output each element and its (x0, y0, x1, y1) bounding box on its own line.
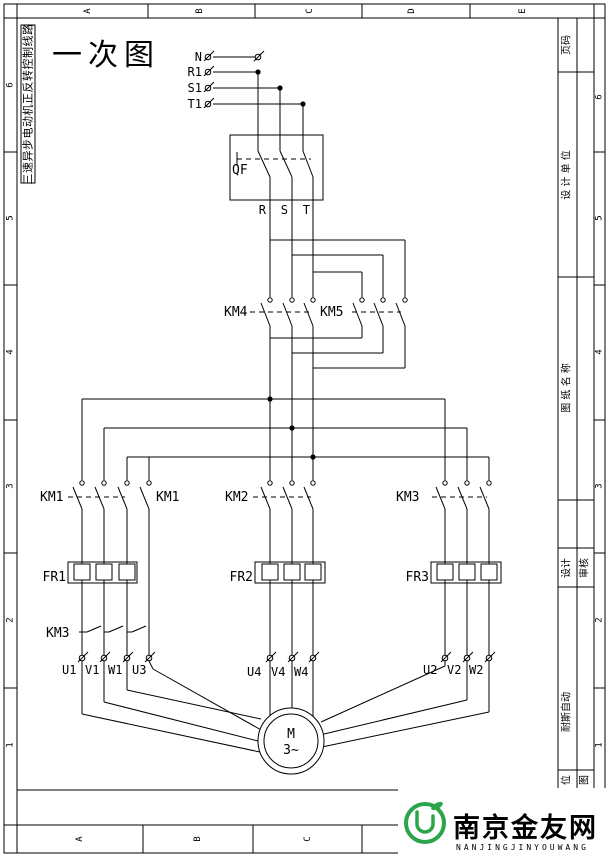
km1-label-left: KM1 (40, 490, 63, 505)
page-title: 一次图 (52, 38, 160, 73)
title-block-design: 设计 (560, 558, 573, 578)
grid-letter-top-c: C (305, 8, 315, 13)
terminal-symbol-n-end (254, 51, 264, 61)
km1-contact (95, 481, 106, 509)
v4-label: V4 (271, 665, 285, 679)
terminal-symbol-t1 (204, 98, 214, 108)
incoming-terminals: N R1 S1 T1 (188, 50, 306, 135)
km2-contact (261, 481, 272, 509)
km1-label-right: KM1 (156, 490, 179, 505)
terminal-symbol-v2 (463, 652, 473, 662)
fr3-relay: FR3 (406, 562, 501, 585)
km1-contact (73, 481, 84, 509)
terminal-t1-label: T1 (188, 97, 202, 111)
km4-label: KM4 (224, 305, 248, 320)
watermark-logo: 南京金友网 NANJINGJINYOUWANG (398, 788, 609, 858)
grid-letter-bottom-c: C (303, 836, 313, 841)
v1-label: V1 (85, 663, 99, 677)
km3-contact (436, 481, 447, 509)
motor-symbol: M 3~ (258, 708, 324, 774)
grid-number-right-4: 4 (595, 349, 605, 354)
terminal-symbol-w4 (309, 652, 319, 662)
distribution-buses (82, 396, 489, 480)
terminal-symbol-n (204, 51, 214, 61)
grid-number-left-1: 1 (6, 742, 16, 747)
grid-letter-top-b: B (195, 8, 205, 13)
schematic-sheet: A B C D E A B C 6 5 4 3 2 1 6 5 4 3 2 1 … (0, 0, 609, 858)
terminal-r1-label: R1 (188, 65, 202, 79)
phase-t-label: T (303, 203, 310, 217)
side-title-box: 三速异步电动机正反转控制线路 (21, 24, 36, 185)
grid-letter-bottom-a: A (75, 836, 85, 842)
km5-label: KM5 (320, 305, 343, 320)
motor-phase-label: 3~ (283, 743, 299, 758)
grid-number-left-6: 6 (6, 82, 16, 87)
u3-label: U3 (132, 663, 146, 677)
terminal-symbol-u3 (145, 652, 155, 662)
grid-letter-top-e: E (518, 8, 528, 13)
grid-letter-bottom-b: B (193, 836, 203, 841)
terminal-symbol-v4 (288, 652, 298, 662)
fr1-relay: FR1 (43, 562, 137, 585)
logo-name: 南京金友网 (453, 812, 598, 844)
terminal-symbol-w1 (123, 652, 133, 662)
km3-label: KM3 (396, 490, 419, 505)
w4-label: W4 (294, 665, 308, 679)
km3-star-label: KM3 (46, 626, 69, 641)
u4-label: U4 (247, 665, 261, 679)
qf-label: QF (232, 163, 248, 178)
fr1-label: FR1 (43, 570, 66, 585)
km4-km5-section: KM4 KM5 (224, 240, 407, 480)
grid-number-right-3: 3 (595, 483, 605, 488)
terminal-symbol-u2 (441, 652, 451, 662)
grid-number-right-1: 1 (595, 742, 605, 747)
km2-label: KM2 (225, 490, 248, 505)
fr2-relay: FR2 (230, 562, 325, 585)
title-block: 页码 设 计 单 位 图 纸 名 称 设计 审核 耐斯自动 位 图 (560, 35, 591, 785)
side-title: 三速异步电动机正反转控制线路 (21, 24, 35, 185)
grid-number-right-2: 2 (595, 617, 605, 622)
terminal-symbol-w2 (485, 652, 495, 662)
junction-dot (310, 454, 315, 459)
terminal-symbol-u1 (78, 652, 88, 662)
grid-number-left-3: 3 (6, 483, 16, 488)
terminal-symbol-u4 (266, 652, 276, 662)
title-block-company: 耐斯自动 (560, 692, 573, 732)
terminal-n-label: N (195, 50, 202, 64)
terminal-s1-label: S1 (188, 81, 202, 95)
phase-s-label: S (281, 203, 288, 217)
terminal-symbol-r1 (204, 66, 214, 76)
km2-contact (304, 481, 315, 509)
km1-contact (140, 481, 151, 509)
title-block-design-unit: 设 计 单 位 (560, 150, 573, 200)
km3-contact (480, 481, 491, 509)
qf-breaker: QF R S T (230, 135, 323, 297)
km1-contact (118, 481, 129, 509)
fr2-label: FR2 (230, 570, 253, 585)
grid-number-left-4: 4 (6, 349, 16, 354)
grid-number-right-6: 6 (595, 94, 605, 99)
title-block-unit-cell: 位 (560, 775, 573, 785)
logo-subtext: NANJINGJINYOUWANG (456, 843, 589, 852)
terminal-symbol-v1 (100, 652, 110, 662)
phase-r-label: R (259, 203, 267, 217)
title-block-review: 审核 (578, 558, 591, 578)
w1-label: W1 (108, 663, 122, 677)
w2-label: W2 (469, 663, 483, 677)
motor-m-label: M (287, 727, 295, 742)
grid-letter-top-a: A (83, 8, 93, 14)
km3-contact (458, 481, 469, 509)
v2-label: V2 (447, 663, 461, 677)
km3-star-bridge: KM3 (46, 626, 146, 641)
terminal-symbol-s1 (204, 82, 214, 92)
km2-contact (283, 481, 294, 509)
fr3-label: FR3 (406, 570, 429, 585)
grid-number-left-5: 5 (6, 215, 16, 220)
u1-label: U1 (62, 663, 76, 677)
thermal-relay-row: FR1 FR2 FR3 (43, 562, 501, 655)
grid-number-right-5: 5 (595, 215, 605, 220)
grid-letter-top-d: D (407, 8, 417, 13)
title-block-page-no: 页码 (561, 35, 573, 55)
junction-dot (289, 425, 294, 430)
junction-dot (267, 396, 272, 401)
grid-number-left-2: 2 (6, 617, 16, 622)
title-block-drawing-name: 图 纸 名 称 (560, 363, 573, 413)
title-block-drawing-cell: 图 (579, 775, 591, 785)
